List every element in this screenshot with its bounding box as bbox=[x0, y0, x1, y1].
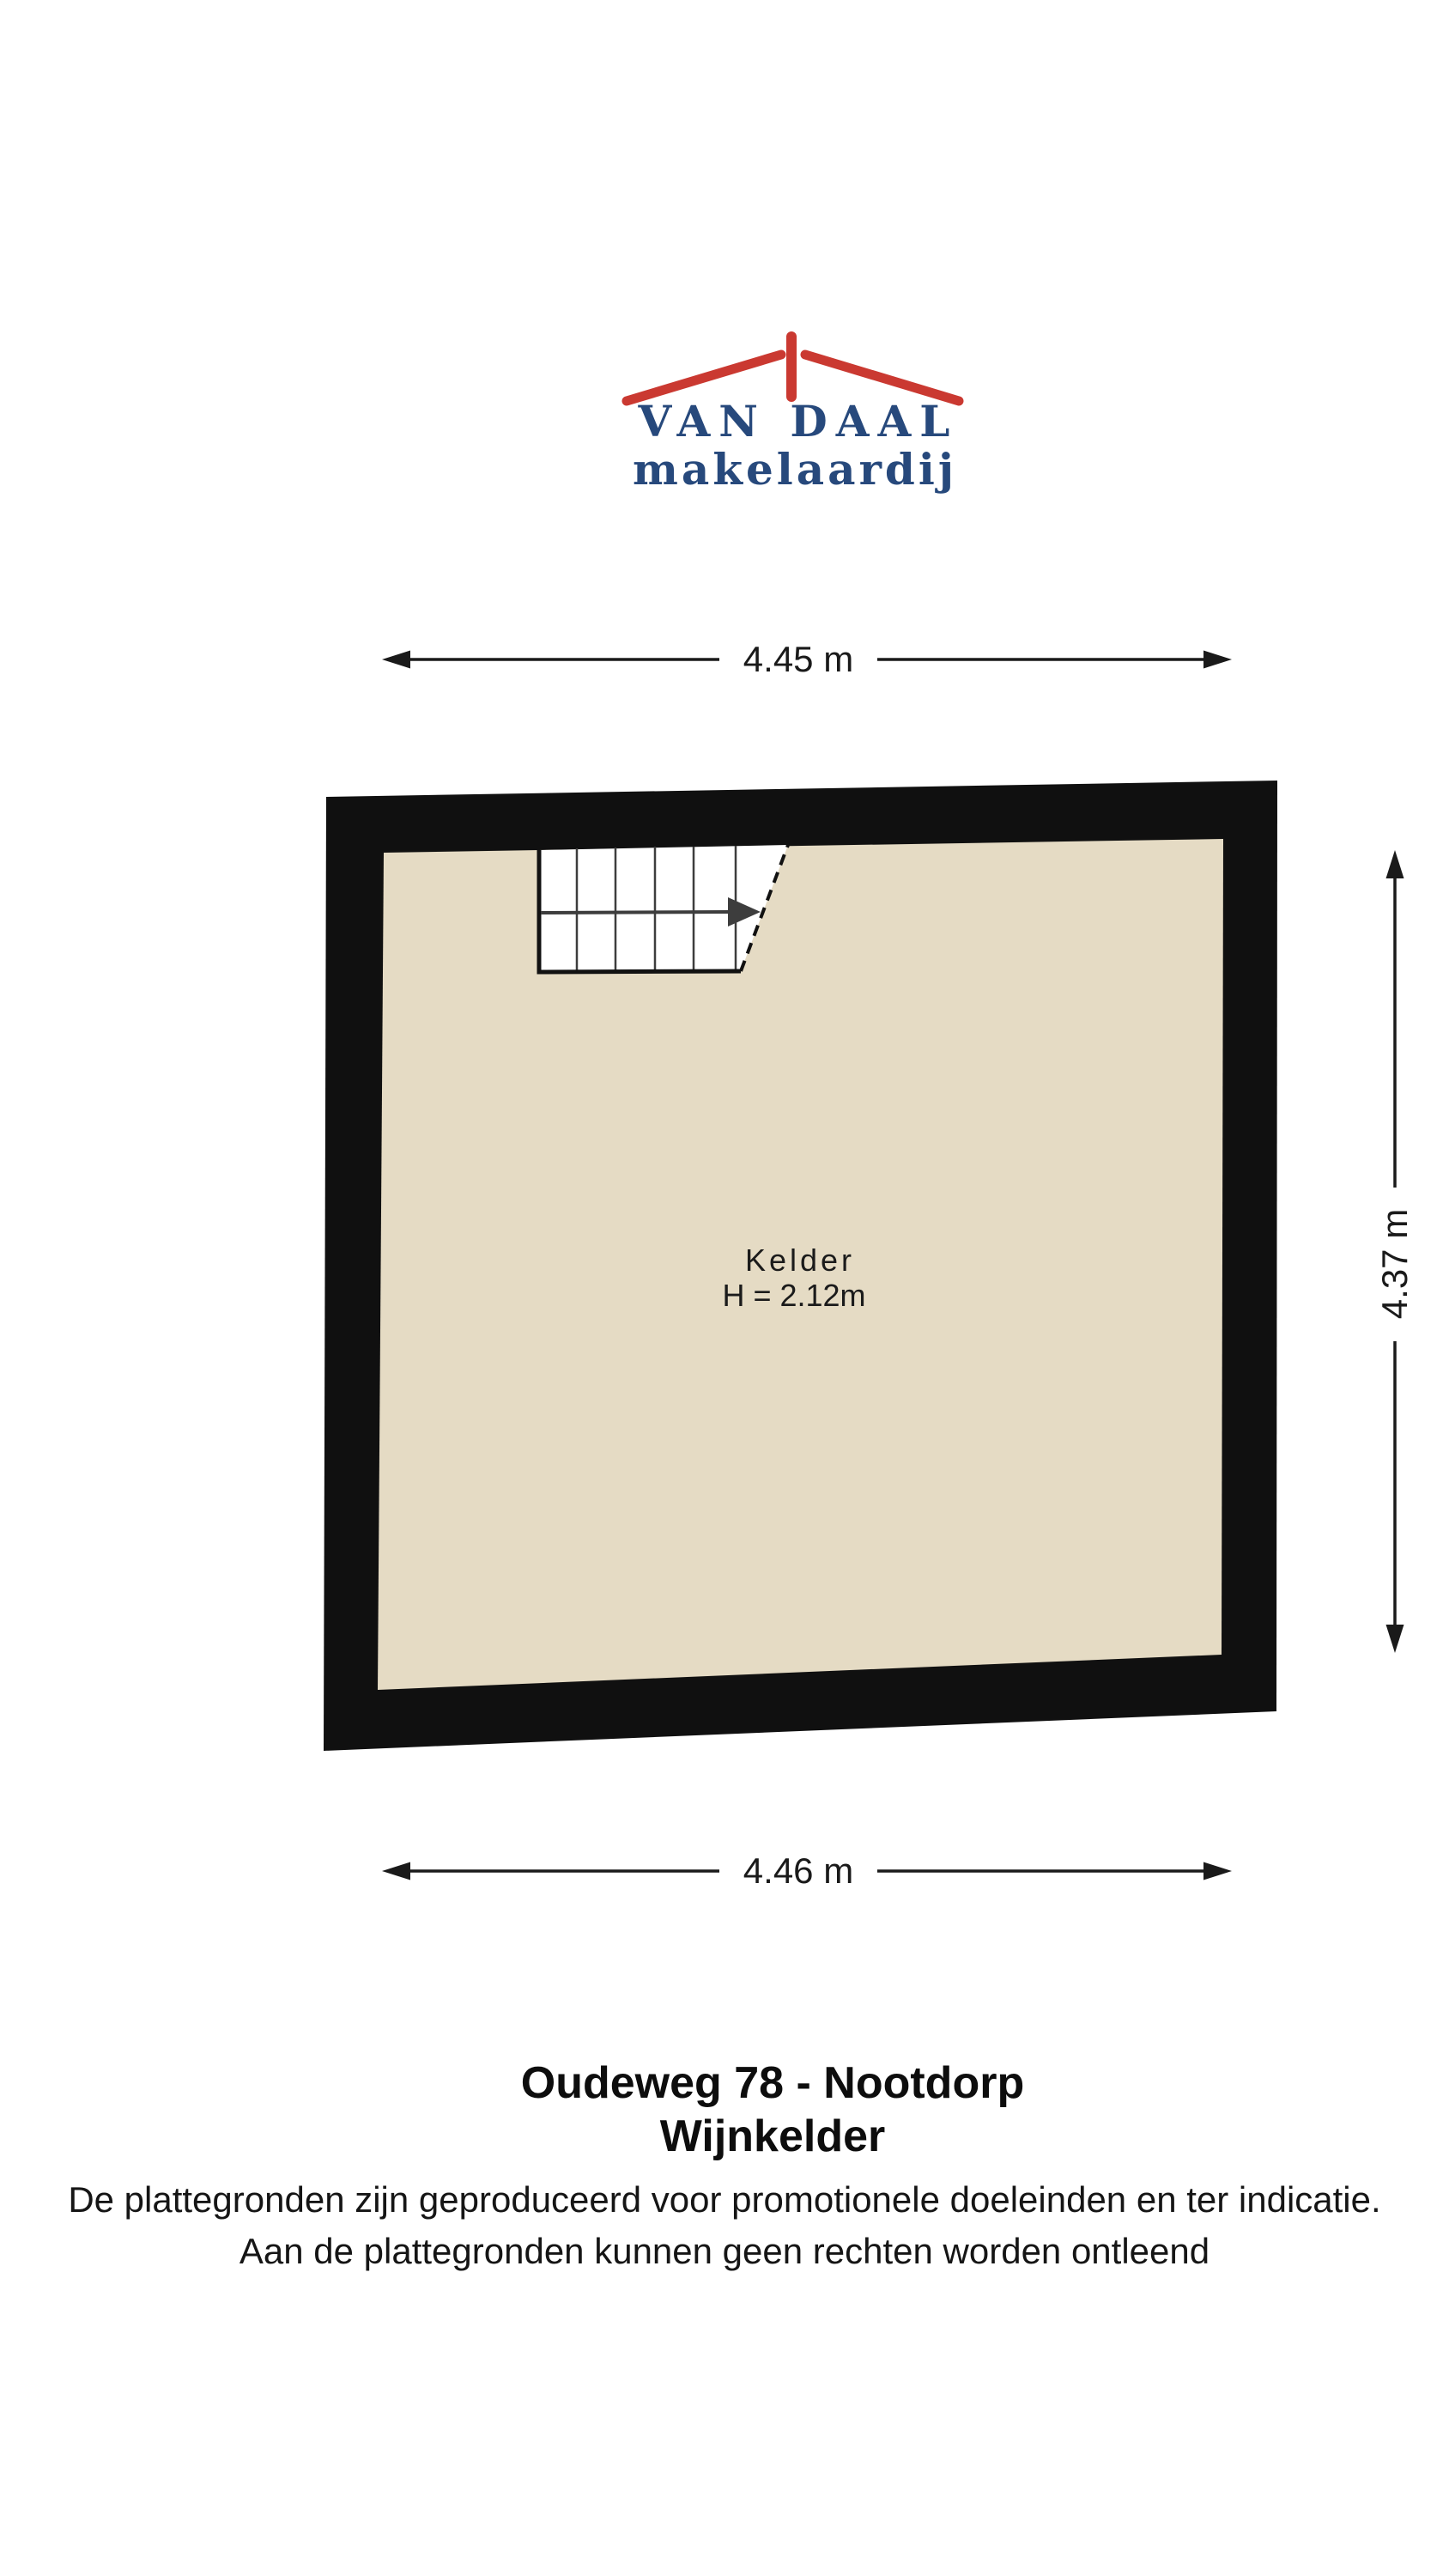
dimension-right-label: 4.37 m bbox=[1374, 1209, 1415, 1319]
arrow-right-icon bbox=[1203, 1862, 1232, 1880]
footer-title-block: Oudeweg 78 - Nootdorp Wijnkelder bbox=[96, 2057, 1449, 2163]
floor-name-subtitle: Wijnkelder bbox=[96, 2110, 1449, 2163]
room-label: Kelder bbox=[745, 1242, 855, 1278]
disclaimer-line-1: De plattegronden zijn geproduceerd voor … bbox=[0, 2174, 1449, 2226]
dimension-right: 4.37 m bbox=[1374, 850, 1415, 1653]
logo-tagline-text: makelaardij bbox=[633, 444, 957, 495]
dimension-top-label: 4.45 m bbox=[743, 639, 853, 679]
room-kelder: Kelder H = 2.12m bbox=[324, 781, 1277, 1751]
stair-walkline bbox=[541, 912, 730, 913]
dimension-top: 4.45 m bbox=[382, 639, 1232, 679]
arrow-left-icon bbox=[382, 1862, 410, 1880]
dimension-bottom-label: 4.46 m bbox=[743, 1850, 853, 1891]
arrow-down-icon bbox=[1386, 1625, 1404, 1653]
roof-icon bbox=[627, 337, 959, 401]
disclaimer-line-2: Aan de plattegronden kunnen geen rechten… bbox=[0, 2226, 1449, 2277]
logo: VAN DAAL makelaardij bbox=[627, 337, 959, 495]
arrow-right-icon bbox=[1203, 651, 1232, 669]
dimension-bottom: 4.46 m bbox=[382, 1850, 1232, 1891]
logo-brand-text: VAN DAAL bbox=[638, 396, 959, 447]
address-title: Oudeweg 78 - Nootdorp bbox=[96, 2057, 1449, 2110]
arrow-left-icon bbox=[382, 651, 410, 669]
room-ceiling-height-label: H = 2.12m bbox=[722, 1278, 865, 1313]
floorplan-page: VAN DAAL makelaardij 4.45 m Kel bbox=[0, 0, 1449, 2576]
arrow-up-icon bbox=[1386, 850, 1404, 878]
disclaimer-block: De plattegronden zijn geproduceerd voor … bbox=[0, 2174, 1449, 2277]
